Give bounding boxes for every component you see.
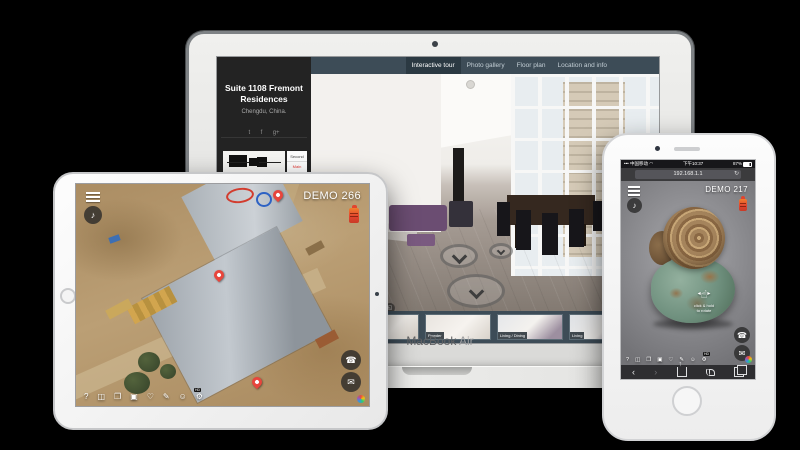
navigation-hotspot[interactable] <box>447 274 505 308</box>
floor-selector: Second Main <box>287 151 307 173</box>
tour-title: Suite 1108 Fremont Residences <box>217 83 311 104</box>
brand-color-icon <box>357 395 365 403</box>
ipad-screen: DEMO 266 ♪ ? ◫ ❐ ▣ ♡ ✎ ☺ ⚙ HD ☎ ✉ <box>75 183 370 407</box>
brand-name: MacBook <box>406 334 456 348</box>
contact-button[interactable]: ✉ <box>341 372 361 392</box>
settings-icon[interactable]: ⚙ <box>196 392 203 401</box>
earpiece <box>674 147 700 151</box>
webcam-icon <box>432 41 438 47</box>
url-field[interactable]: 192.168.1.1 ↻ <box>635 170 741 179</box>
facebook-icon[interactable]: f <box>261 130 263 136</box>
ipad-device: DEMO 266 ♪ ? ◫ ❐ ▣ ♡ ✎ ☺ ⚙ HD ☎ ✉ <box>53 172 388 430</box>
battery-icon <box>743 162 752 167</box>
navigation-hotspot[interactable] <box>489 243 513 259</box>
rotate-hint: ◂☝▸ click & hold to rotate <box>669 285 739 313</box>
vr-icon[interactable]: ◫ <box>635 357 640 363</box>
sidebar-divider <box>221 137 307 138</box>
tree <box>160 364 176 379</box>
navigation-hotspot[interactable] <box>440 244 478 268</box>
aerial-map-view[interactable] <box>76 184 369 406</box>
camera-icon[interactable]: ▣ <box>657 357 662 363</box>
debris <box>105 298 133 319</box>
clock-label: 下午10:37 <box>683 161 703 167</box>
gallery-icon[interactable]: ❐ <box>646 357 651 363</box>
extinguisher-marker[interactable] <box>349 208 359 223</box>
tour-toolbar: ? ◫ ❐ ▣ ♡ ✎ ☺ ⚙ <box>626 357 707 363</box>
tree <box>138 352 160 372</box>
hd-badge: HD <box>703 352 710 356</box>
gallery-icon[interactable]: ❐ <box>114 392 121 401</box>
purple-sofa <box>389 205 447 231</box>
truck <box>108 234 120 243</box>
home-button[interactable] <box>672 386 702 416</box>
armchair <box>449 201 473 227</box>
favorite-icon[interactable]: ♡ <box>147 392 154 401</box>
ram-sculpture[interactable] <box>631 187 745 337</box>
iphone-screen: ••• 中国移动 ◠ 下午10:37 87% 192.168.1.1 ↻ DEM… <box>620 159 756 380</box>
floor-option-main[interactable]: Main <box>287 161 307 169</box>
dining-chair <box>516 210 531 250</box>
tour-toolbar: ? ◫ ❐ ▣ ♡ ✎ ☺ ⚙ <box>84 392 203 401</box>
floorplan-shape <box>229 155 247 167</box>
brand-model: Air <box>459 334 474 348</box>
hd-badge: HD <box>194 388 201 392</box>
home-button[interactable] <box>60 288 76 304</box>
address-bar: 192.168.1.1 ↻ <box>621 168 755 181</box>
tour-navbar: Interactive tour Photo gallery Floor pla… <box>311 57 659 74</box>
call-button[interactable]: ☎ <box>341 350 361 370</box>
twitter-icon[interactable]: t <box>248 130 250 136</box>
dining-chair <box>542 213 558 255</box>
call-button[interactable]: ☎ <box>734 327 750 343</box>
smiley-icon[interactable]: ☺ <box>690 357 696 363</box>
dining-chair <box>569 209 584 247</box>
ram-horn-spiral <box>663 207 725 269</box>
ottoman <box>407 234 435 246</box>
dining-chair <box>497 202 510 236</box>
blue-scribble-annotation <box>256 192 272 207</box>
smiley-icon[interactable]: ☺ <box>179 392 187 401</box>
lid-notch <box>402 367 472 375</box>
viewer-3d: DEMO 217 ♪ ◂☝▸ click & hold to rotate ☎ … <box>621 181 755 365</box>
share-icon[interactable] <box>677 367 687 377</box>
tour-location: Chengdu, China. <box>217 109 311 115</box>
settings-icon[interactable]: ⚙ <box>702 357 707 363</box>
refresh-icon[interactable]: ↻ <box>734 170 739 179</box>
demo-label: DEMO 266 <box>303 190 361 202</box>
vr-icon[interactable]: ◫ <box>97 392 105 401</box>
wifi-icon: ◠ <box>649 161 653 166</box>
tree <box>124 372 150 394</box>
floorplan-slider-handle[interactable] <box>249 158 259 166</box>
google-plus-icon[interactable]: g+ <box>273 130 280 136</box>
tab-location-and-info[interactable]: Location and info <box>551 57 613 74</box>
tab-photo-gallery[interactable]: Photo gallery <box>461 57 511 74</box>
menu-button[interactable] <box>86 192 100 204</box>
tab-floor-plan[interactable]: Floor plan <box>511 57 552 74</box>
front-camera-icon <box>375 292 379 296</box>
bookmarks-icon[interactable] <box>706 369 715 376</box>
floorplan-preview[interactable] <box>223 151 285 173</box>
forward-button[interactable]: › <box>654 365 657 379</box>
back-button[interactable]: ‹ <box>632 365 635 379</box>
help-icon[interactable]: ? <box>626 357 629 363</box>
arrow-right-icon: ▸ <box>707 291 710 297</box>
camera-icon[interactable]: ▣ <box>130 392 138 401</box>
status-bar: ••• 中国移动 ◠ 下午10:37 87% <box>621 160 755 168</box>
safari-toolbar: ‹ › <box>621 365 755 379</box>
favorite-icon[interactable]: ♡ <box>668 357 673 363</box>
tabs-icon[interactable] <box>734 367 744 377</box>
tab-interactive-tour[interactable]: Interactive tour <box>406 57 461 74</box>
annotate-icon[interactable]: ✎ <box>163 392 170 401</box>
iphone-device: ••• 中国移动 ◠ 下午10:37 87% 192.168.1.1 ↻ DEM… <box>602 133 776 441</box>
floor-option-second[interactable]: Second <box>287 151 307 159</box>
ceiling-light <box>466 80 475 89</box>
music-button[interactable]: ♪ <box>84 206 102 224</box>
carrier-label: ••• 中国移动 ◠ <box>624 161 653 167</box>
brand-color-icon <box>745 356 752 363</box>
battery-label: 87% <box>733 161 752 166</box>
debris <box>305 240 325 256</box>
front-camera-icon <box>655 146 660 151</box>
help-icon[interactable]: ? <box>84 392 88 401</box>
